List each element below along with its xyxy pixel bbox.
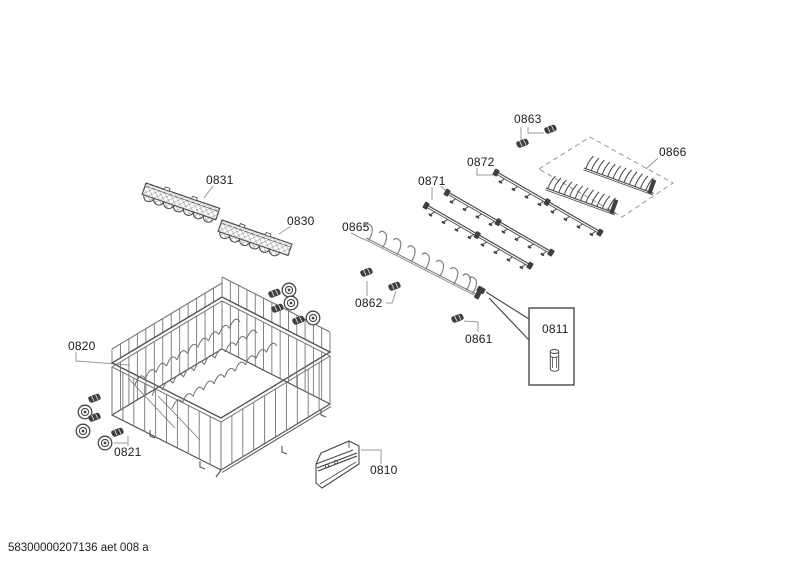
clip-roller-r2: [271, 304, 284, 313]
callout-0862[interactable]: 0862: [355, 297, 383, 309]
clip-0862-left: [360, 268, 373, 277]
part-drawing-0871-rail-right: [441, 188, 555, 260]
clip-roller-r3: [292, 316, 305, 325]
part-drawing-0830-tine-row: [216, 218, 292, 261]
clip-roller-l3: [111, 428, 124, 437]
callout-0810[interactable]: 0810: [370, 464, 398, 476]
callout-0821[interactable]: 0821: [114, 446, 142, 458]
part-drawing-0866-insert-right: [583, 154, 658, 195]
diagram-line-art: [0, 0, 800, 566]
part-drawing-0820-basket: [112, 277, 331, 477]
callout-0863[interactable]: 0863: [514, 113, 542, 125]
part-drawing-0810-tray: [316, 441, 359, 488]
part-drawing-0865-hook-rail: [358, 223, 486, 300]
clip-0863-right: [544, 125, 557, 134]
part-drawing-0831-tine-row: [140, 181, 220, 225]
detail-box-frame: [529, 308, 574, 385]
clip-roller-l1: [88, 394, 101, 403]
callout-0871[interactable]: 0871: [418, 175, 446, 187]
callout-0865[interactable]: 0865: [342, 221, 370, 233]
callout-0861[interactable]: 0861: [465, 333, 493, 345]
document-code: 58300000207136 aet 008 a: [8, 542, 149, 554]
clip-0863-left: [516, 139, 529, 148]
clip-0861: [451, 314, 464, 323]
part-drawing-0871-rail-left: [420, 201, 534, 273]
callout-0872[interactable]: 0872: [467, 156, 495, 168]
callout-0811[interactable]: 0811: [542, 323, 569, 335]
clip-0862-right: [388, 282, 401, 291]
callout-0831[interactable]: 0831: [206, 174, 234, 186]
callout-0866[interactable]: 0866: [659, 146, 687, 158]
clip-roller-r1: [268, 289, 281, 298]
group-outline-0866: [539, 137, 673, 217]
parts-diagram-page: 0831 0830 0863 0866 0872 0871 0865 0862 …: [0, 0, 800, 566]
callout-0820[interactable]: 0820: [68, 340, 96, 352]
callout-0830[interactable]: 0830: [287, 215, 315, 227]
